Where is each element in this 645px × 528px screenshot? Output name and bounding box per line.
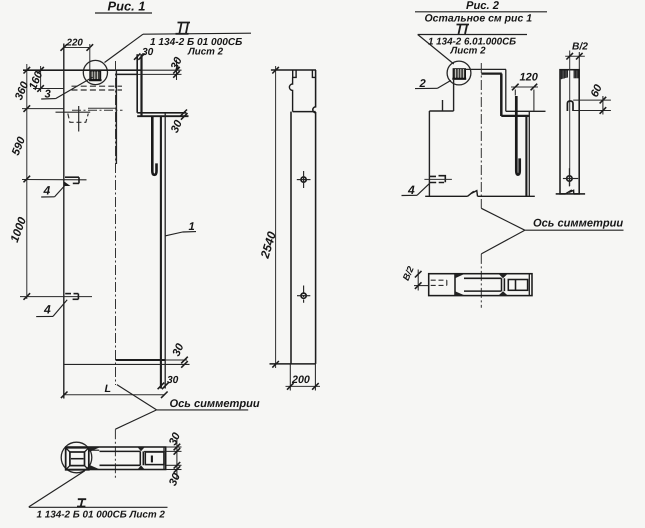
svg-text:Рис. 1: Рис. 1 [108,0,146,14]
svg-text:30: 30 [142,47,154,58]
svg-text:Ось симметрии: Ось симметрии [170,398,260,410]
svg-text:Лист 2: Лист 2 [187,47,224,58]
svg-text:4: 4 [43,303,51,317]
svg-text:Ось симметрии: Ось симметрии [533,218,623,230]
svg-text:Лист 2: Лист 2 [450,46,487,57]
svg-text:1 134-2 Б 01 000СБ Лист 2: 1 134-2 Б 01 000СБ Лист 2 [37,510,166,521]
svg-text:4: 4 [43,184,51,198]
svg-text:200: 200 [291,374,310,386]
svg-text:В/2: В/2 [572,42,588,53]
svg-text:120: 120 [520,72,539,84]
svg-text:Рис. 2: Рис. 2 [466,0,500,12]
svg-text:30: 30 [167,375,179,386]
svg-text:Остальное см рис 1: Остальное см рис 1 [425,13,533,25]
svg-text:220: 220 [66,38,84,49]
svg-text:L: L [105,383,112,395]
